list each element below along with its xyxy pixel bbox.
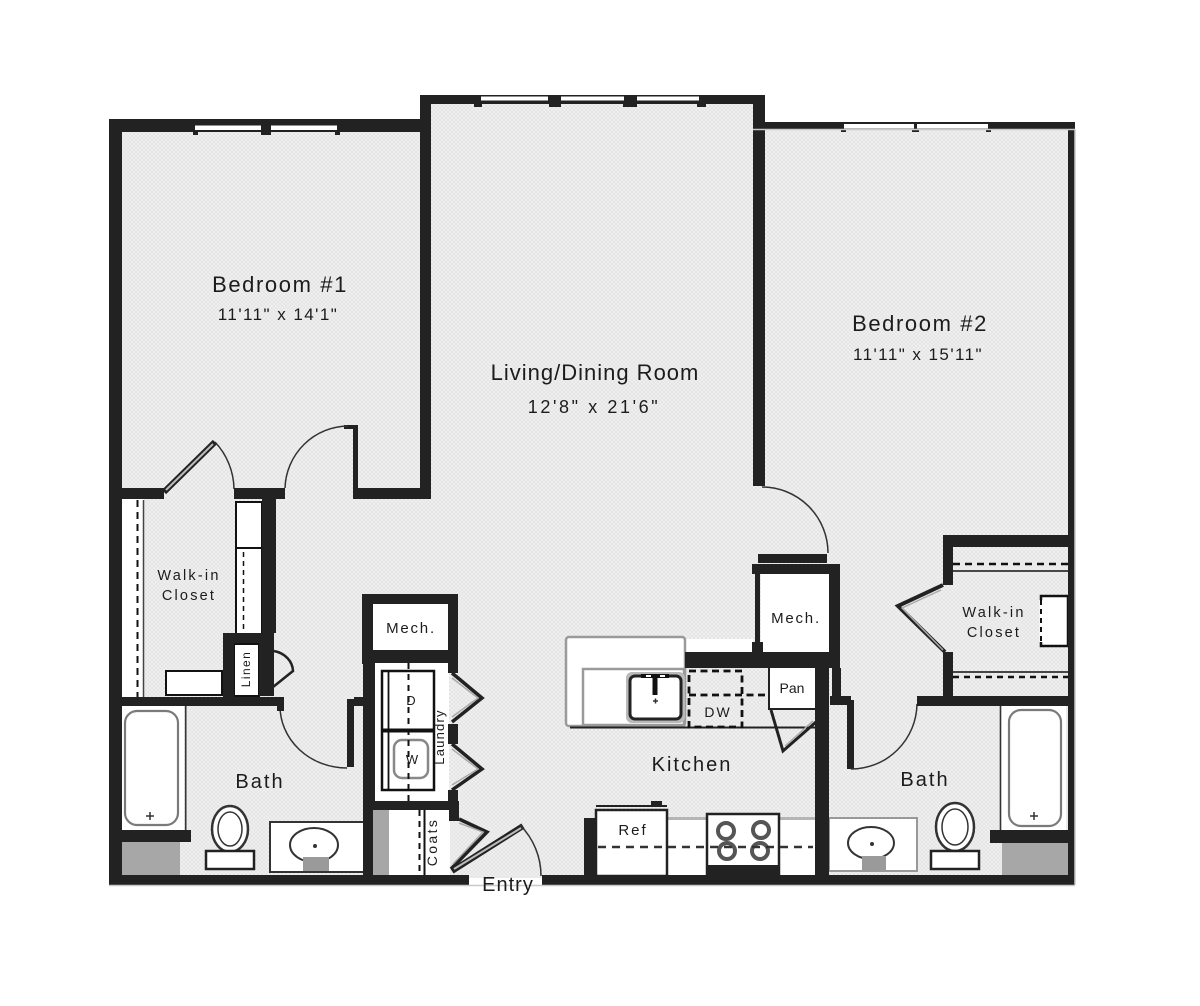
- svg-text:Kitchen: Kitchen: [652, 754, 733, 776]
- svg-text:11'11" x 15'11": 11'11" x 15'11": [853, 345, 983, 364]
- svg-text:Mech.: Mech.: [386, 620, 436, 637]
- svg-text:Laundry: Laundry: [432, 709, 447, 764]
- svg-text:Walk-in: Walk-in: [157, 568, 220, 584]
- svg-text:Coats: Coats: [424, 818, 440, 867]
- svg-text:Bath: Bath: [235, 771, 284, 793]
- svg-text:Living/Dining Room: Living/Dining Room: [491, 360, 700, 385]
- svg-text:12'8" x 21'6": 12'8" x 21'6": [528, 397, 661, 417]
- svg-text:Pan: Pan: [780, 680, 805, 696]
- svg-text:Ref: Ref: [618, 822, 647, 839]
- svg-text:D: D: [406, 693, 415, 708]
- svg-text:W: W: [406, 752, 419, 767]
- svg-text:Bedroom #1: Bedroom #1: [212, 272, 348, 297]
- svg-text:Closet: Closet: [967, 625, 1021, 641]
- svg-text:Bedroom #2: Bedroom #2: [852, 311, 988, 336]
- svg-text:11'11" x 14'1": 11'11" x 14'1": [218, 305, 338, 324]
- svg-text:Bath: Bath: [900, 769, 949, 791]
- svg-text:Linen: Linen: [239, 651, 253, 687]
- svg-text:Closet: Closet: [162, 588, 216, 604]
- svg-text:Entry: Entry: [482, 874, 534, 896]
- svg-text:DW: DW: [704, 704, 731, 720]
- svg-text:Walk-in: Walk-in: [962, 605, 1025, 621]
- svg-text:Mech.: Mech.: [771, 610, 821, 627]
